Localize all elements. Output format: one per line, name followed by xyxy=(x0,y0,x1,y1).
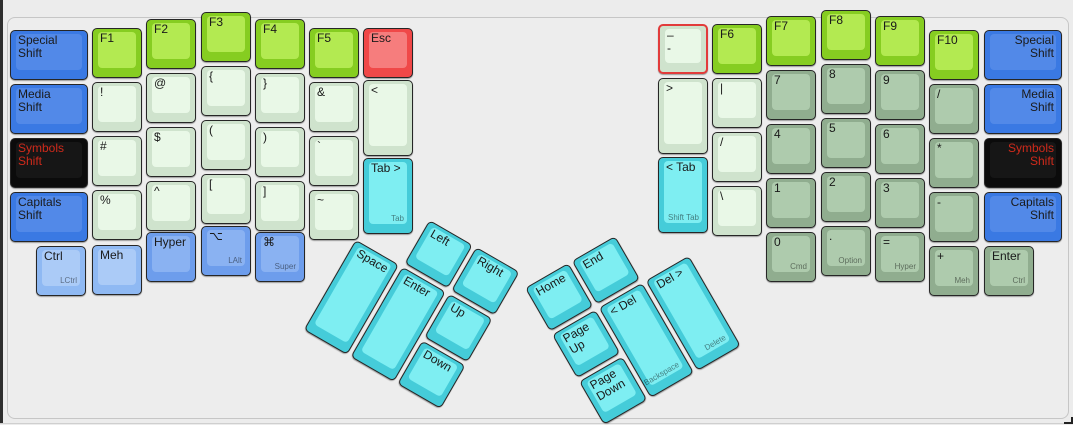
keycap-top-surface xyxy=(665,29,701,63)
key-num-multiply[interactable]: * xyxy=(929,138,979,188)
keycap-top-surface xyxy=(152,236,190,272)
key-bracket-close[interactable]: ] xyxy=(255,181,305,231)
key-paren-close[interactable]: ) xyxy=(255,127,305,177)
key-label: - xyxy=(937,196,971,209)
key-front-legend: Shift Tab xyxy=(668,213,699,222)
key-label: > xyxy=(666,82,700,95)
key-num-0[interactable]: 0Cmd xyxy=(766,232,816,282)
keycap-top-surface xyxy=(207,16,245,52)
keycap-top-surface xyxy=(772,20,810,56)
key-label: F8 xyxy=(829,14,863,27)
key-brace-close[interactable]: } xyxy=(255,73,305,123)
key-hyper-left[interactable]: Hyper xyxy=(146,232,196,282)
key-label: & xyxy=(317,86,351,99)
key-label: < Tab xyxy=(666,161,700,174)
key-label: @ xyxy=(154,77,188,90)
key-f4[interactable]: F4 xyxy=(255,19,305,69)
key-label: 3 xyxy=(883,182,917,195)
key-label: / xyxy=(720,136,754,149)
key-num-period[interactable]: .Option xyxy=(821,226,871,276)
key-front-legend: Tab xyxy=(391,214,404,223)
key-label: ) xyxy=(263,131,297,144)
key-num-minus[interactable]: - xyxy=(929,192,979,242)
key-f6[interactable]: F6 xyxy=(712,24,762,74)
keycap-top-surface xyxy=(315,32,353,68)
key-label: 8 xyxy=(829,68,863,81)
key-front-legend: Meh xyxy=(954,276,970,285)
key-dollar[interactable]: $ xyxy=(146,127,196,177)
key-label: { xyxy=(209,70,243,83)
key-f1[interactable]: F1 xyxy=(92,28,142,78)
key-label: $ xyxy=(154,131,188,144)
key-paren-open[interactable]: ( xyxy=(201,120,251,170)
key-label: 9 xyxy=(883,74,917,87)
key-front-legend: LAlt xyxy=(228,256,242,265)
key-num-5[interactable]: 5 xyxy=(821,118,871,168)
keycap-top-surface xyxy=(772,128,810,164)
key-pipe[interactable]: | xyxy=(712,78,762,128)
key-label: Media Shift xyxy=(18,88,80,115)
key-label: Special Shift xyxy=(992,34,1054,61)
keycap-top-surface xyxy=(98,32,136,68)
key-percent[interactable]: % xyxy=(92,190,142,240)
key-label: * xyxy=(937,142,971,155)
key-front-legend: Ctrl xyxy=(1013,276,1025,285)
key-label: % xyxy=(100,194,134,207)
keycap-top-surface xyxy=(315,86,353,122)
key-label: – - xyxy=(667,29,699,56)
key-label: Enter xyxy=(992,250,1026,263)
key-f2[interactable]: F2 xyxy=(146,19,196,69)
key-label: 2 xyxy=(829,176,863,189)
key-label: # xyxy=(100,140,134,153)
key-num-3[interactable]: 3 xyxy=(875,178,925,228)
key-label: 6 xyxy=(883,128,917,141)
key-label: 5 xyxy=(829,122,863,135)
window-corner-mark xyxy=(1064,417,1073,424)
key-label: Special Shift xyxy=(18,34,80,61)
key-media-shift-right[interactable]: Media Shift xyxy=(984,84,1062,134)
key-label: Capitals Shift xyxy=(18,196,80,223)
key-label: = xyxy=(883,236,917,249)
key-label: ( xyxy=(209,124,243,137)
key-num-divide[interactable]: / xyxy=(929,84,979,134)
keycap-top-surface xyxy=(990,34,1056,70)
key-num-4[interactable]: 4 xyxy=(766,124,816,174)
key-label: F2 xyxy=(154,23,188,36)
keycap-top-surface xyxy=(772,74,810,110)
key-label: F6 xyxy=(720,28,754,41)
keycap-top-surface xyxy=(935,142,973,178)
keycap-top-surface xyxy=(315,194,353,230)
keycap-top-surface xyxy=(315,140,353,176)
key-f5[interactable]: F5 xyxy=(309,28,359,78)
key-capitals-shift-left[interactable]: Capitals Shift xyxy=(10,192,88,242)
key-label: Meh xyxy=(100,249,134,262)
key-num-plus[interactable]: +Meh xyxy=(929,246,979,296)
keycap-top-surface xyxy=(16,142,82,178)
keycap-top-surface xyxy=(881,20,919,56)
keycap-top-surface xyxy=(261,131,299,167)
keycap-top-surface xyxy=(207,124,245,160)
key-super[interactable]: ⌘Super xyxy=(255,232,305,282)
key-less-than[interactable]: < xyxy=(363,80,413,156)
key-num-1[interactable]: 1 xyxy=(766,178,816,228)
key-label: ] xyxy=(263,185,297,198)
key-num-6[interactable]: 6 xyxy=(875,124,925,174)
key-label: Ctrl xyxy=(44,250,78,263)
key-label: 0 xyxy=(774,236,808,249)
keycap-top-surface xyxy=(881,128,919,164)
key-label: Tab > xyxy=(371,162,405,175)
key-label: | xyxy=(720,82,754,95)
keycap-top-surface xyxy=(827,14,865,50)
key-front-legend: Option xyxy=(838,256,862,265)
keycap-top-surface xyxy=(207,70,245,106)
keycap-top-surface xyxy=(152,131,190,167)
keycap-top-surface xyxy=(935,88,973,124)
key-tilde[interactable]: ~ xyxy=(309,190,359,240)
key-tab-back[interactable]: < TabShift Tab xyxy=(658,157,708,233)
keycap-top-surface xyxy=(261,23,299,59)
key-media-shift-left[interactable]: Media Shift xyxy=(10,84,88,134)
key-label: Hyper xyxy=(154,236,188,249)
keycap-top-surface xyxy=(16,88,82,124)
key-ctrl-left[interactable]: CtrlLCtrl xyxy=(36,246,86,296)
keycap-top-surface xyxy=(827,68,865,104)
key-capitals-shift-right[interactable]: Capitals Shift xyxy=(984,192,1062,242)
keycap-top-surface xyxy=(772,182,810,218)
key-f8[interactable]: F8 xyxy=(821,10,871,60)
key-hash[interactable]: # xyxy=(92,136,142,186)
keycap-top-surface xyxy=(827,176,865,212)
keycap-top-surface xyxy=(827,122,865,158)
keycap-top-surface xyxy=(718,82,756,118)
keycap-top-surface xyxy=(935,250,973,286)
keycap-top-surface xyxy=(718,190,756,226)
key-meh-left[interactable]: Meh xyxy=(92,245,142,295)
key-label: ~ xyxy=(317,194,351,207)
keycap-top-surface xyxy=(261,236,299,272)
key-numpad-enter[interactable]: EnterCtrl xyxy=(984,246,1034,296)
key-label: + xyxy=(937,250,971,263)
keycap-top-surface xyxy=(98,249,136,285)
keycap-top-surface xyxy=(16,196,82,232)
key-lalt[interactable]: ⌥LAlt xyxy=(201,226,251,276)
key-label: Media Shift xyxy=(992,88,1054,115)
keycap-top-surface xyxy=(664,82,702,144)
key-num-9[interactable]: 9 xyxy=(875,70,925,120)
keycap-top-surface xyxy=(718,28,756,64)
key-label: 1 xyxy=(774,182,808,195)
key-label: F3 xyxy=(209,16,243,29)
keycap-top-surface xyxy=(881,74,919,110)
key-symbols-shift-right[interactable]: Symbols Shift xyxy=(984,138,1062,188)
keycap-top-surface xyxy=(42,250,80,286)
keycap-top-surface xyxy=(990,142,1056,178)
key-front-legend: Cmd xyxy=(790,262,807,271)
keycap-top-surface xyxy=(881,236,919,272)
key-label: ⌥ xyxy=(209,230,243,243)
key-label: ! xyxy=(100,86,134,99)
key-label: ` xyxy=(317,140,351,153)
key-special-shift-left[interactable]: Special Shift xyxy=(10,30,88,80)
key-front-legend: Hyper xyxy=(895,262,916,271)
key-dash-selected[interactable]: – - xyxy=(658,24,708,74)
keycap-top-surface xyxy=(261,77,299,113)
keycap-top-surface xyxy=(935,196,973,232)
key-num-7[interactable]: 7 xyxy=(766,70,816,120)
keycap-top-surface xyxy=(369,84,407,146)
key-slash-pale[interactable]: / xyxy=(712,132,762,182)
keycap-top-surface xyxy=(369,32,407,68)
key-f7[interactable]: F7 xyxy=(766,16,816,66)
keycap-top-surface xyxy=(664,161,702,223)
key-f3[interactable]: F3 xyxy=(201,12,251,62)
keycap-top-surface xyxy=(152,77,190,113)
keycap-top-surface xyxy=(881,182,919,218)
key-exclamation[interactable]: ! xyxy=(92,82,142,132)
keycap-top-surface xyxy=(98,194,136,230)
keycap-top-surface xyxy=(935,34,973,70)
keycap-top-surface xyxy=(369,162,407,224)
keycap-top-surface xyxy=(16,34,82,70)
key-num-equals[interactable]: =Hyper xyxy=(875,232,925,282)
keycap-top-surface xyxy=(718,136,756,172)
key-label: F7 xyxy=(774,20,808,33)
key-symbols-shift-left[interactable]: Symbols Shift xyxy=(10,138,88,188)
keycap-top-surface xyxy=(990,196,1056,232)
key-label: ⌘ xyxy=(263,236,297,249)
key-label: F10 xyxy=(937,34,971,47)
key-label: ^ xyxy=(154,185,188,198)
keycap-top-surface xyxy=(772,236,810,272)
key-backslash[interactable]: \ xyxy=(712,186,762,236)
keycap-top-surface xyxy=(207,178,245,214)
key-label: Capitals Shift xyxy=(992,196,1054,223)
key-label: \ xyxy=(720,190,754,203)
keycap-top-surface xyxy=(152,23,190,59)
key-label: Symbols Shift xyxy=(18,142,80,169)
key-brace-open[interactable]: { xyxy=(201,66,251,116)
key-num-8[interactable]: 8 xyxy=(821,64,871,114)
key-label: 4 xyxy=(774,128,808,141)
key-label: Esc xyxy=(371,32,405,45)
key-label: F1 xyxy=(100,32,134,45)
keycap-top-surface xyxy=(990,88,1056,124)
key-at[interactable]: @ xyxy=(146,73,196,123)
key-label: F9 xyxy=(883,20,917,33)
key-front-legend: Super xyxy=(275,262,296,271)
keycap-top-surface xyxy=(827,230,865,266)
key-num-2[interactable]: 2 xyxy=(821,172,871,222)
keycap-top-surface xyxy=(261,185,299,221)
keycap-top-surface xyxy=(98,86,136,122)
key-label: 7 xyxy=(774,74,808,87)
keycap-top-surface xyxy=(152,185,190,221)
key-label: / xyxy=(937,88,971,101)
key-label: } xyxy=(263,77,297,90)
key-greater-than[interactable]: > xyxy=(658,78,708,154)
key-caret[interactable]: ^ xyxy=(146,181,196,231)
keycap-top-surface xyxy=(98,140,136,176)
key-tab-forward[interactable]: Tab >Tab xyxy=(363,158,413,234)
keycap-top-surface xyxy=(990,250,1028,286)
window-left-edge xyxy=(0,0,3,424)
keycap-top-surface xyxy=(207,230,245,266)
key-special-shift-right[interactable]: Special Shift xyxy=(984,30,1062,80)
key-label: . xyxy=(829,230,863,243)
key-label: F4 xyxy=(263,23,297,36)
key-front-legend: LCtrl xyxy=(60,276,77,285)
key-ampersand[interactable]: & xyxy=(309,82,359,132)
key-backtick[interactable]: ` xyxy=(309,136,359,186)
key-f10[interactable]: F10 xyxy=(929,30,979,80)
key-esc[interactable]: Esc xyxy=(363,28,413,78)
key-label: F5 xyxy=(317,32,351,45)
key-bracket-open[interactable]: [ xyxy=(201,174,251,224)
key-label: Symbols Shift xyxy=(992,142,1054,169)
key-front-legend: Delete xyxy=(703,333,728,352)
key-front-legend: Backspace xyxy=(642,360,680,387)
key-label: < xyxy=(371,84,405,97)
key-label: [ xyxy=(209,178,243,191)
key-f9[interactable]: F9 xyxy=(875,16,925,66)
